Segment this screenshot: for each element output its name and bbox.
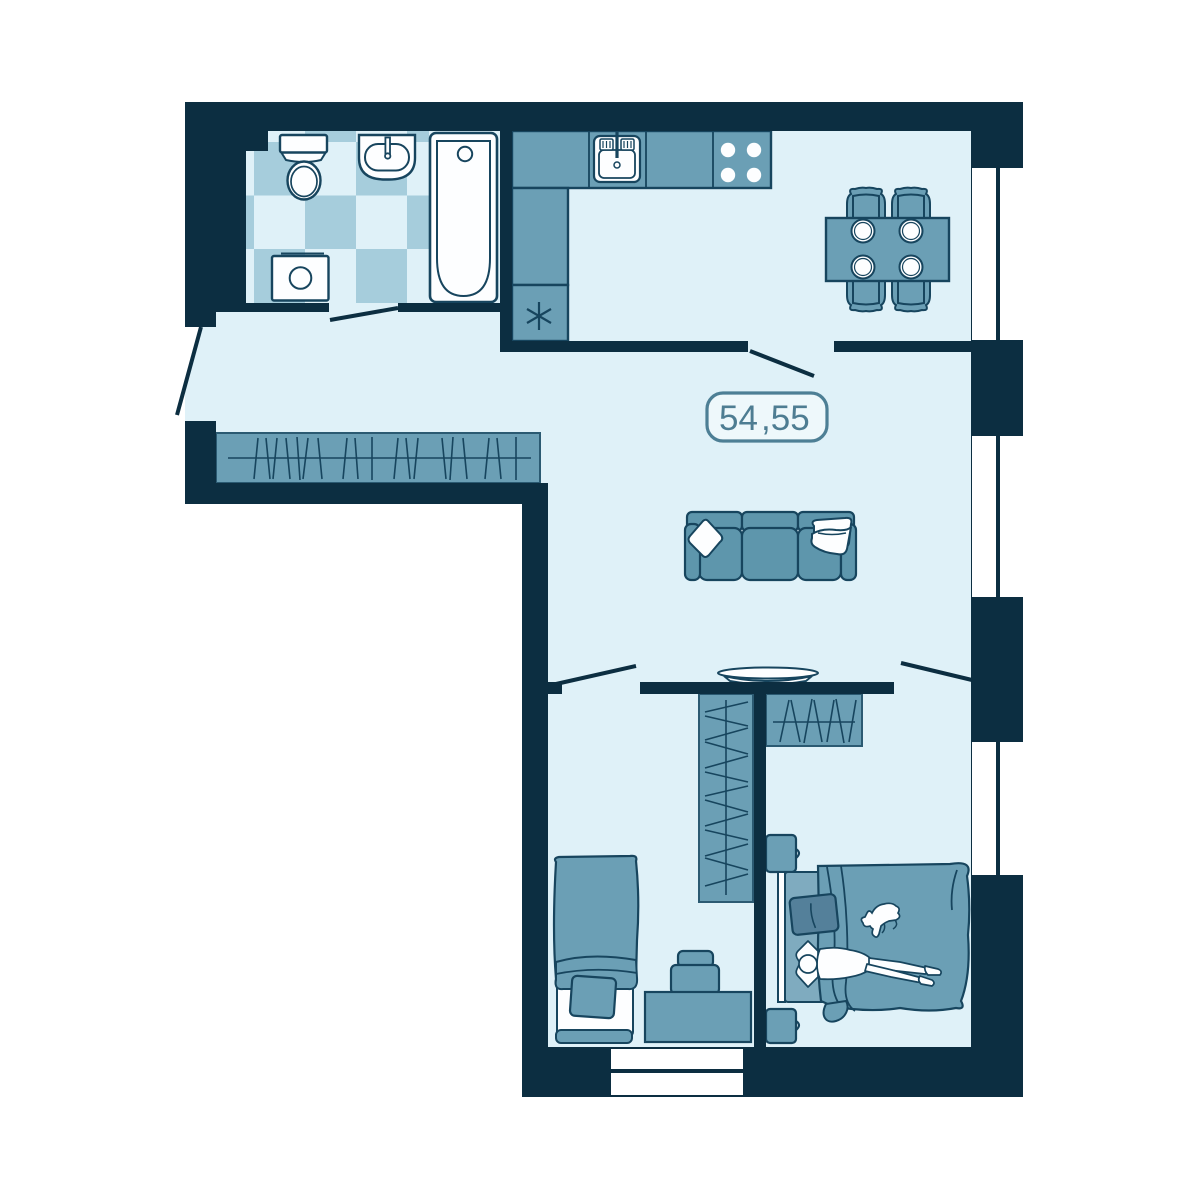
svg-text:54: 54: [719, 399, 758, 438]
svg-text:,55: ,55: [761, 399, 810, 438]
